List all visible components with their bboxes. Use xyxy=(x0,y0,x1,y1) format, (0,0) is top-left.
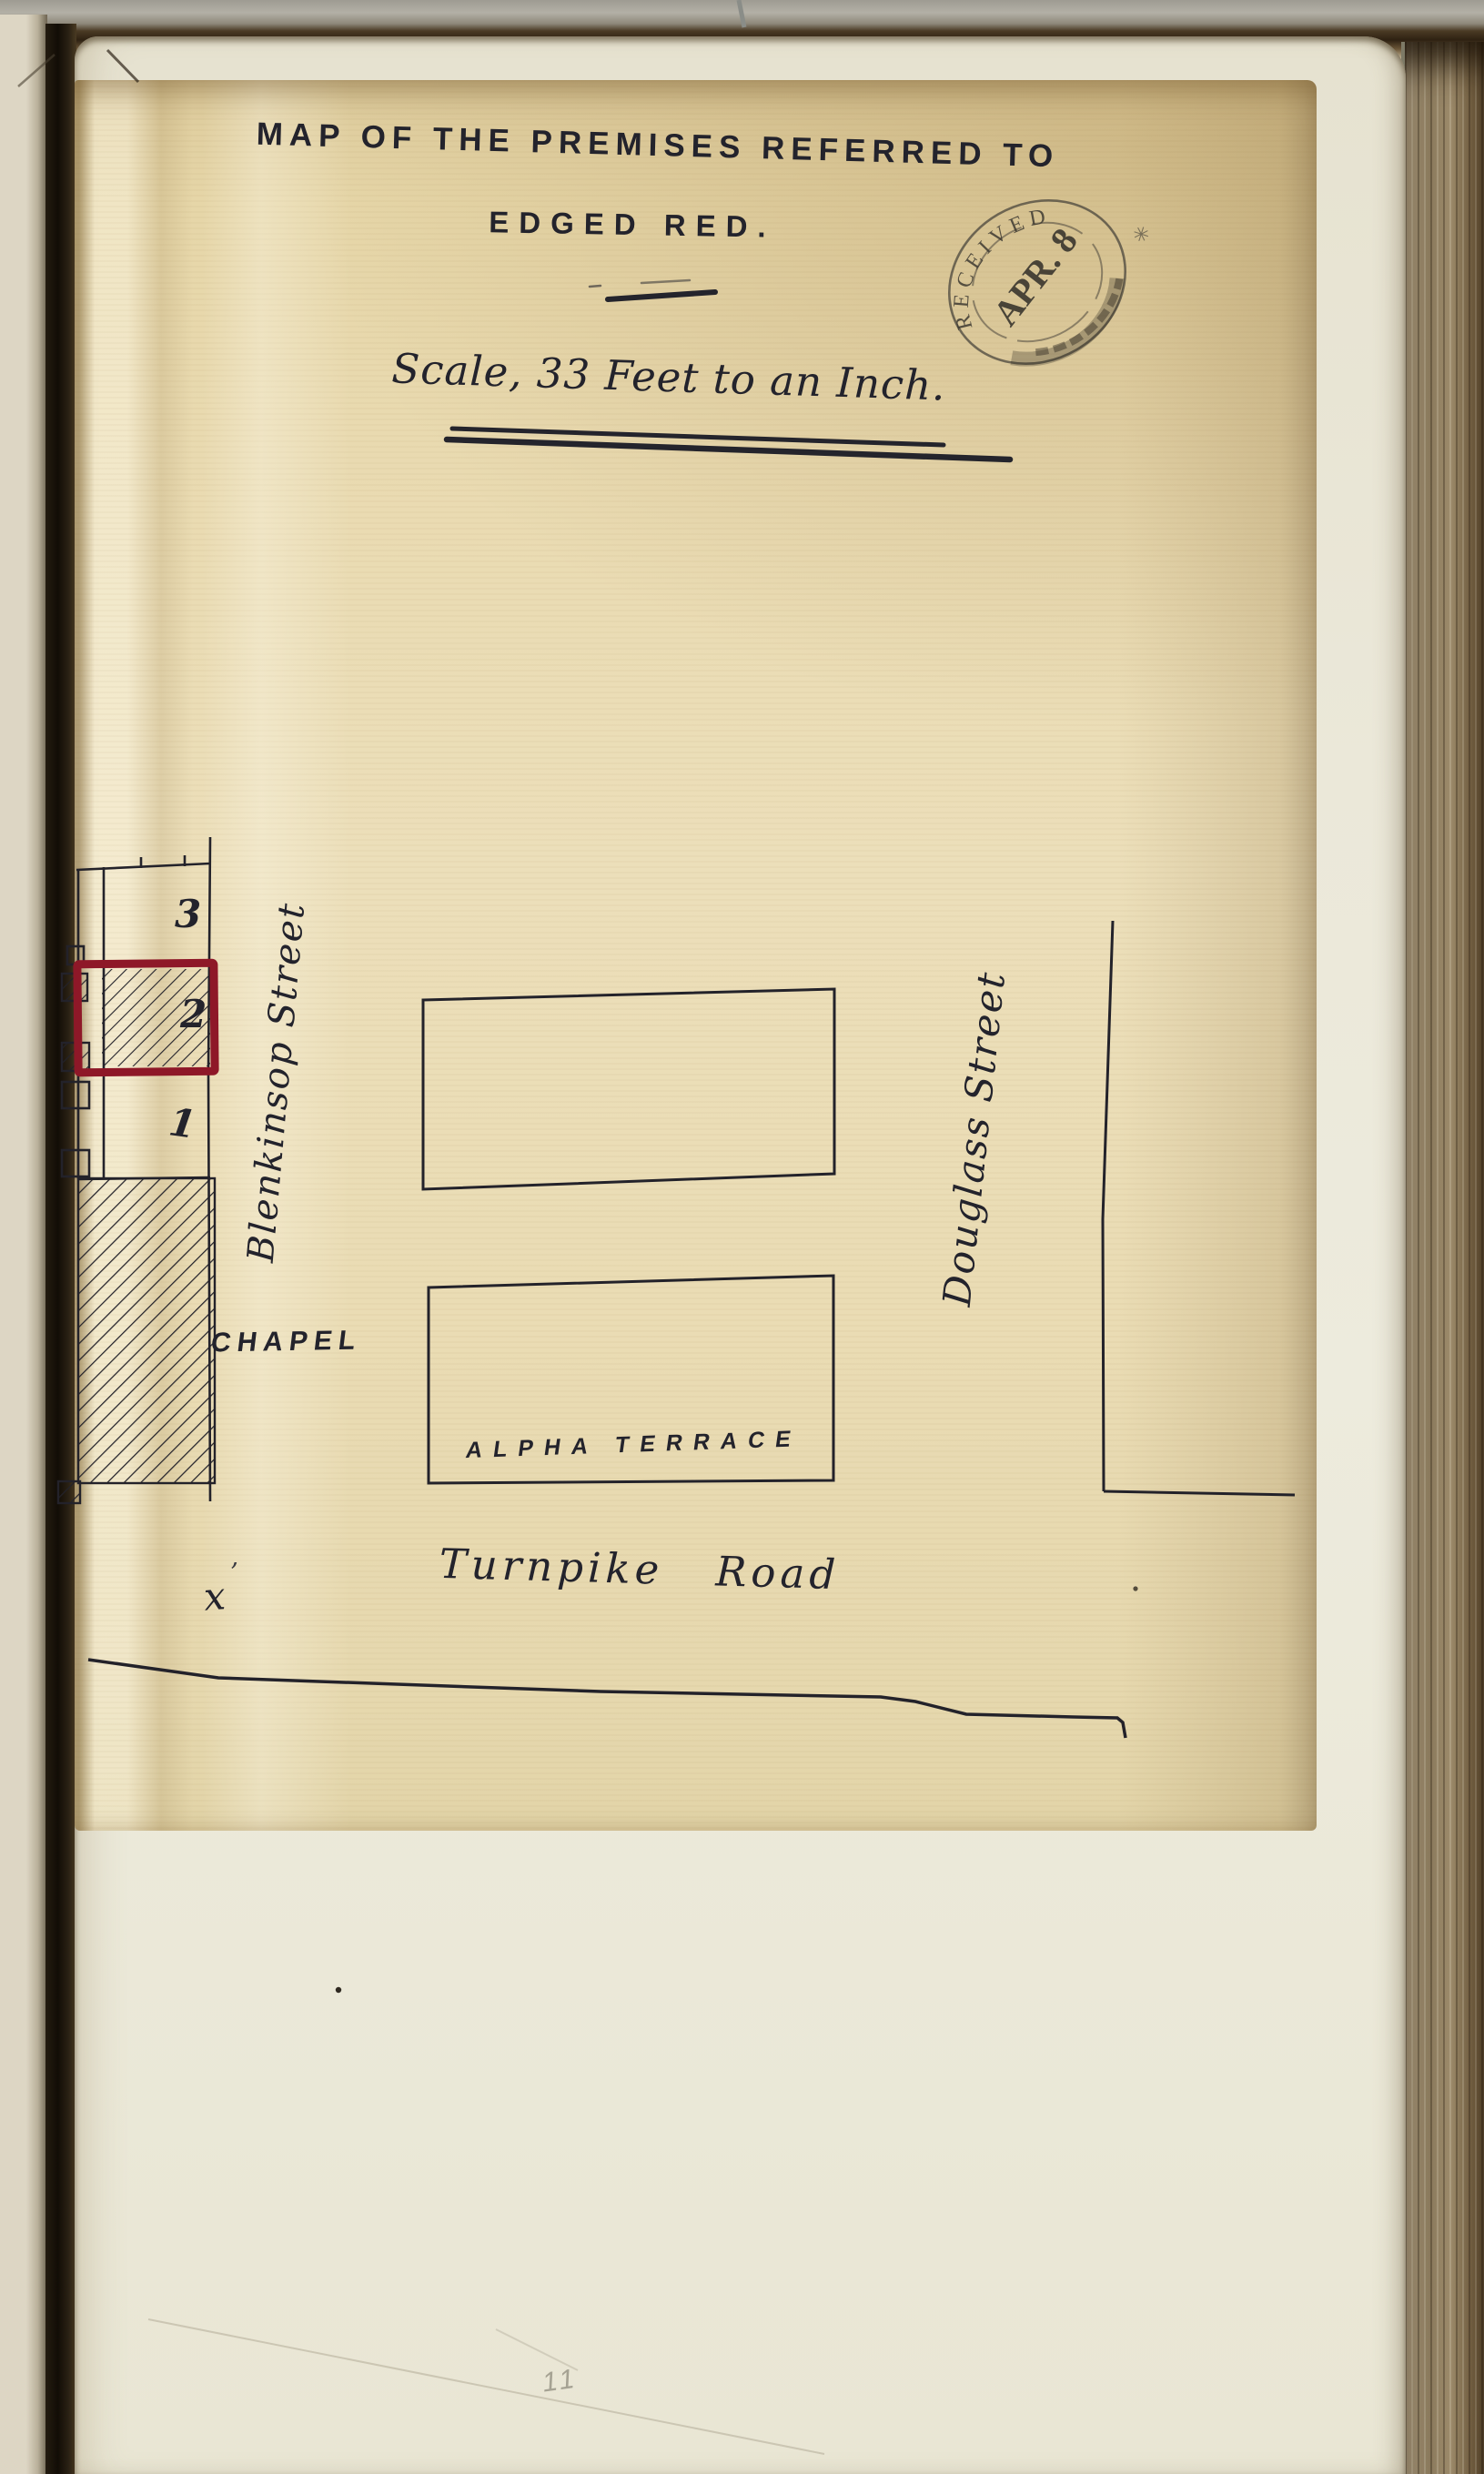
plot-number-3: 3 xyxy=(175,892,201,936)
centre-blocks xyxy=(423,989,834,1483)
pencil-page-number: 11 xyxy=(540,2363,580,2398)
chapel-block xyxy=(78,1178,215,1483)
north-block xyxy=(423,989,834,1189)
surveyor-mark: x xyxy=(202,1573,227,1620)
plot-number-2: 2 xyxy=(180,992,207,1036)
stamp-side-mark: ✳ xyxy=(1129,221,1152,247)
east-boundary xyxy=(1103,921,1295,1495)
chapel-label: CHAPEL xyxy=(209,1326,364,1359)
surveyor-mark-flourish: ʼ xyxy=(229,1558,237,1588)
title-divider-dash xyxy=(590,280,715,299)
scanned-map-page: RECEIVED APR. 8 1872 ✳ xyxy=(0,0,1484,2474)
turnpike-road-line xyxy=(88,1660,1126,1738)
chapel-annex xyxy=(58,1481,80,1503)
map-title-line2: EDGED RED. xyxy=(450,205,815,246)
scale-underline xyxy=(447,429,1010,459)
